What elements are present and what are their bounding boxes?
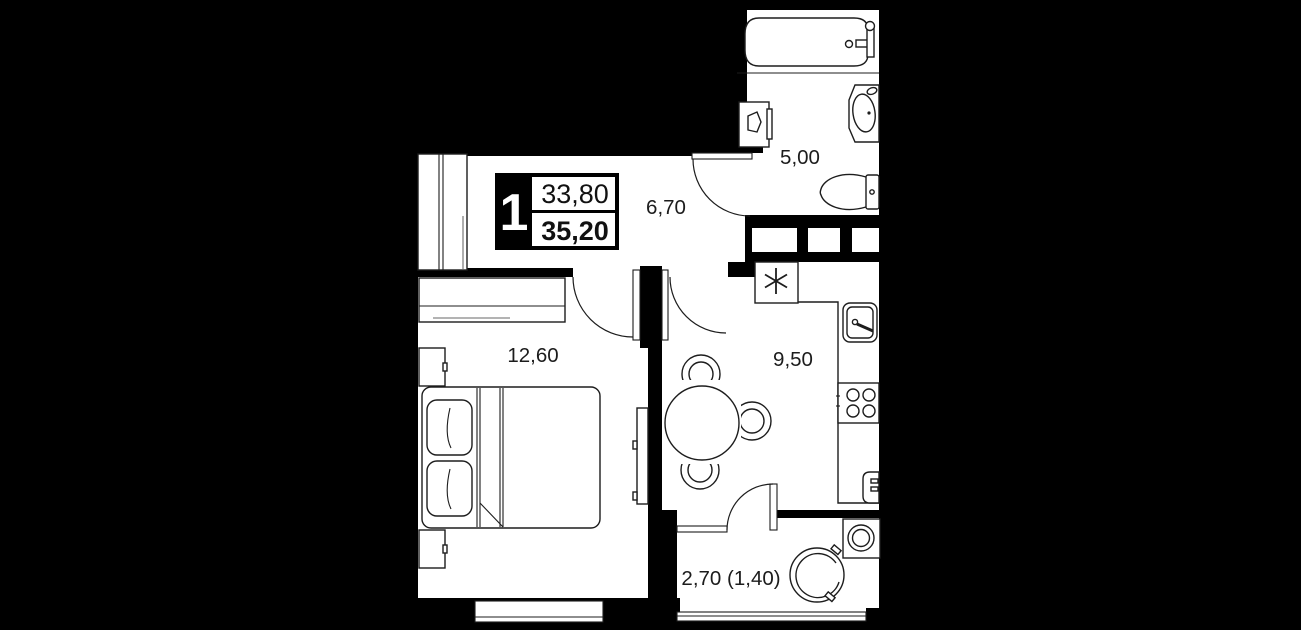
balcony-corner-wall (866, 608, 886, 625)
tv-bracket-2 (633, 492, 637, 500)
vent-duct-1 (752, 228, 797, 252)
kitchen-top-wall-stub (728, 262, 755, 277)
bedroom-area-label: 12,60 (507, 344, 558, 367)
kitchen-door-opening (668, 262, 728, 277)
toilet-tank (866, 175, 879, 209)
vent-duct-2 (808, 228, 840, 252)
bedroom-door-opening (573, 268, 633, 277)
vent-duct-3 (852, 228, 879, 252)
toilet-bowl-icon (820, 175, 868, 210)
bathroom-top-wall (737, 4, 886, 10)
bath-washer-tab (767, 109, 772, 139)
ventilation-shaft (745, 215, 884, 262)
nightstand-top-icon (419, 348, 445, 386)
nightstand-bottom-icon (419, 530, 445, 568)
hallway-area-label: 6,70 (646, 196, 686, 219)
badge-total-area: 35,20 (541, 216, 609, 246)
balcony-area-label: 2,70 (1,40) (681, 567, 780, 590)
nightstand-top-knob (443, 363, 447, 371)
kitchen-door-jamb (662, 270, 668, 340)
balcony-door-leaf (770, 484, 777, 530)
bathroom-area-label: 5,00 (780, 146, 820, 169)
balcony-left-wall (648, 510, 677, 625)
badge-living-area: 33,80 (541, 179, 609, 209)
nightstand-bottom-knob (443, 545, 447, 553)
hallway-furniture (418, 154, 467, 270)
left-outer-wall (410, 146, 418, 625)
dining-table-icon (665, 386, 739, 460)
bathtub-mixer-knob (866, 22, 875, 31)
bath-washer-icon (739, 102, 769, 147)
bathroom-sink-drain (867, 111, 870, 114)
tv-bracket-1 (633, 441, 637, 449)
bedroom-window (475, 601, 603, 622)
kitchen-balcony-wall (775, 510, 884, 518)
entrance-door-leaf (692, 153, 752, 159)
bedroom-door-jamb (633, 270, 640, 340)
stove-icon (838, 383, 879, 423)
badge-room-count: 1 (500, 184, 529, 242)
balcony-door-threshold (677, 526, 727, 532)
area-badge: 1 33,80 35,20 (497, 175, 617, 248)
floor-plan-page: 5,00 6,70 12,60 9,50 2,70 (1,40) 1 33,80… (0, 0, 1301, 630)
kitchen-area-label: 9,50 (773, 348, 813, 371)
tv-console-icon (637, 408, 648, 504)
floor-plan: 5,00 6,70 12,60 9,50 2,70 (1,40) 1 33,80… (0, 0, 1301, 630)
dresser-icon (419, 278, 565, 322)
bathtub-icon (745, 18, 868, 66)
